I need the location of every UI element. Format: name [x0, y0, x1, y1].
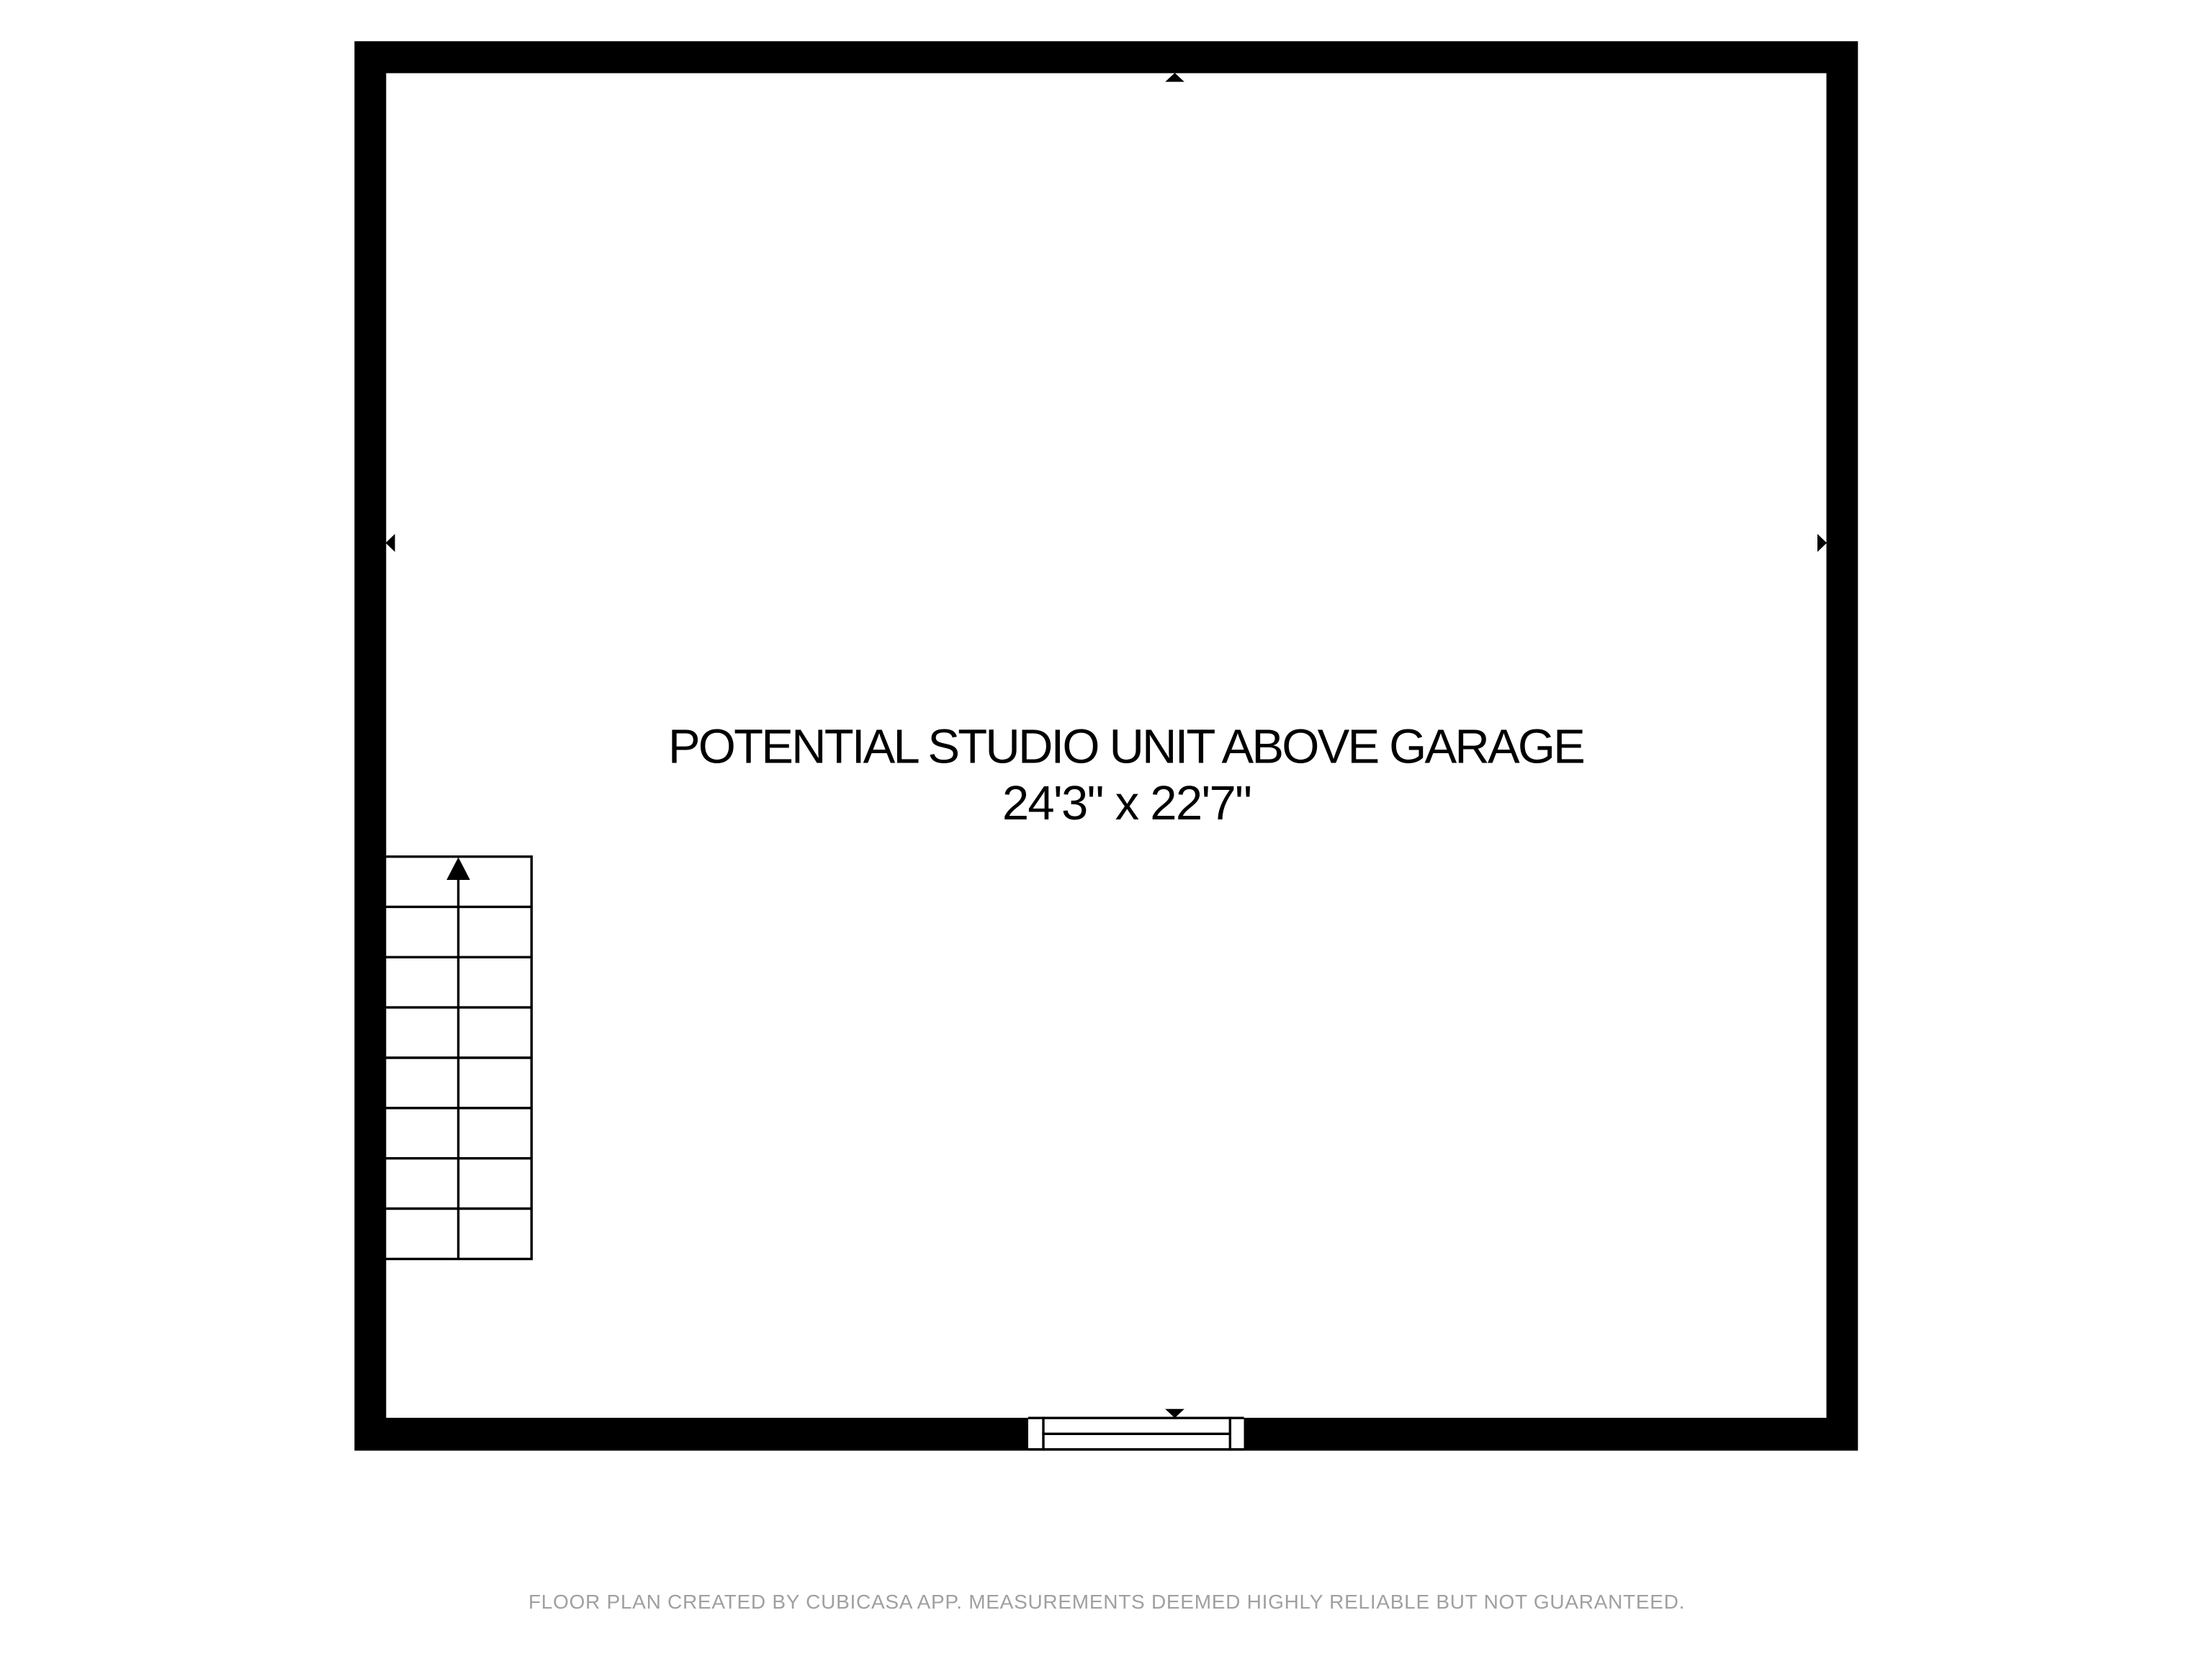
svg-text:FLOOR PLAN CREATED BY CUBICASA: FLOOR PLAN CREATED BY CUBICASA APP. MEAS… — [529, 1591, 1685, 1613]
svg-text:24'3" x 22'7": 24'3" x 22'7" — [1002, 776, 1251, 830]
svg-text:POTENTIAL STUDIO UNIT ABOVE GA: POTENTIAL STUDIO UNIT ABOVE GARAGE — [668, 719, 1583, 773]
